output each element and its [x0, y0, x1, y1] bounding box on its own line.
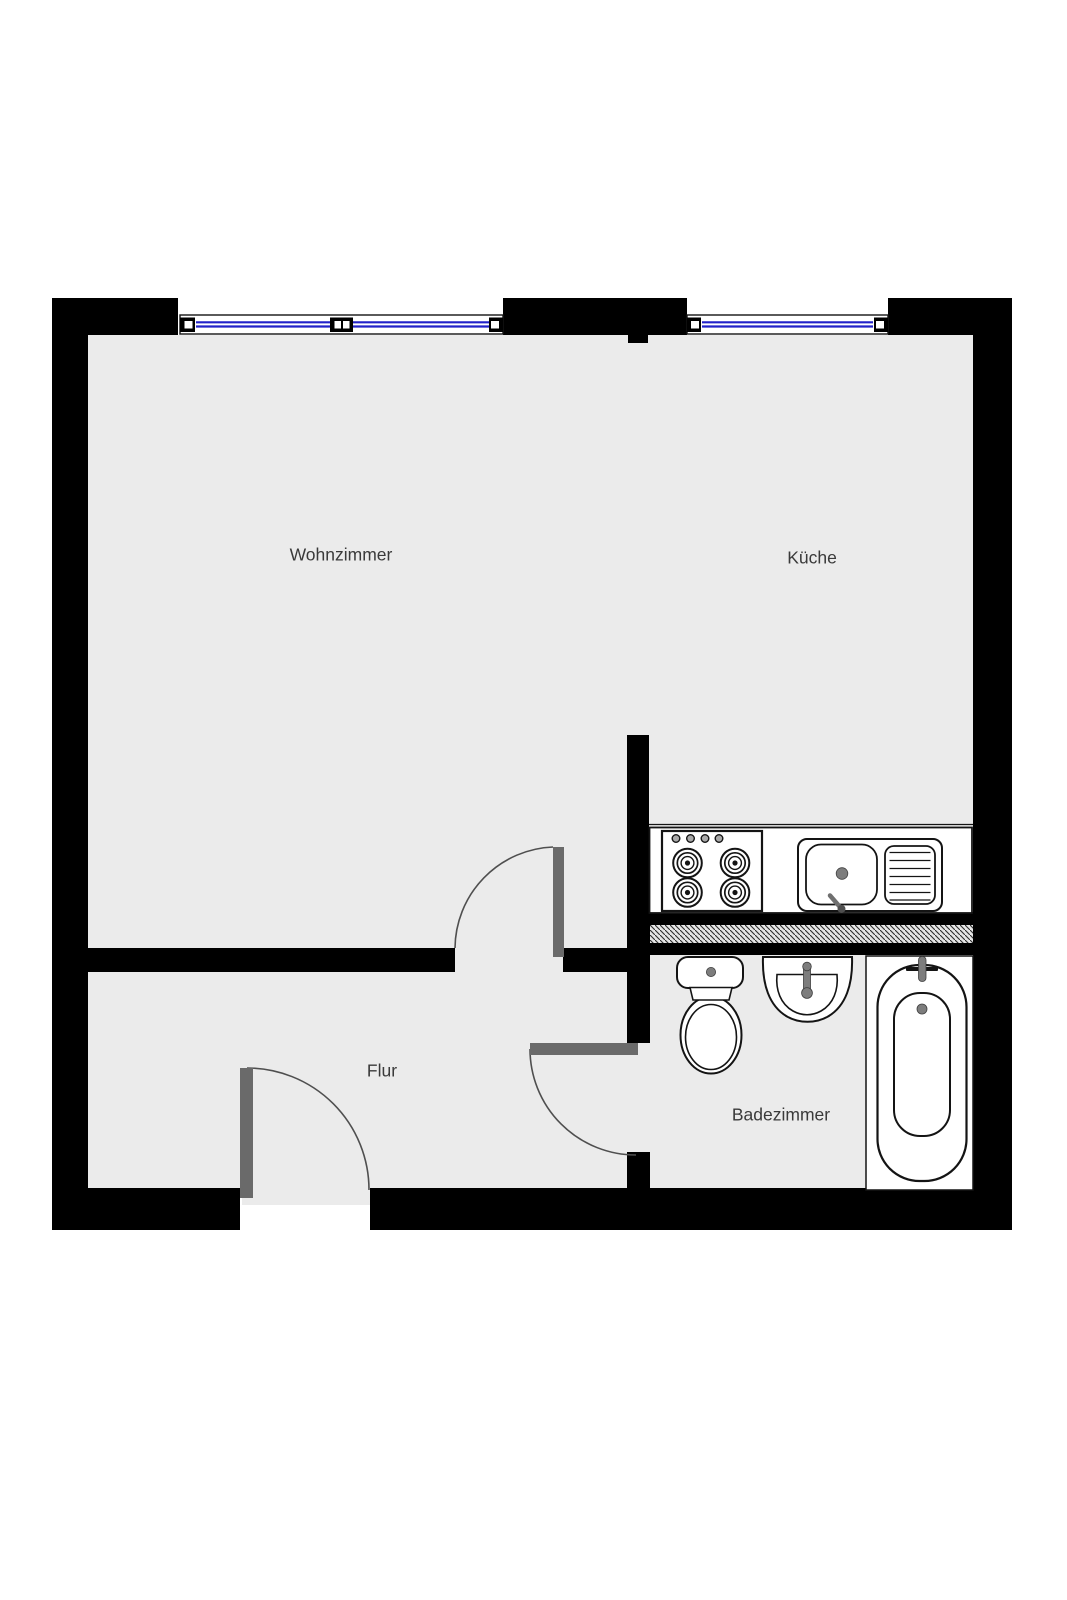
- window-wohnzimmer: [180, 315, 503, 334]
- stove-burner: [673, 849, 702, 878]
- sink-drain: [836, 868, 848, 880]
- room-label-flur: Flur: [367, 1061, 397, 1081]
- window-mullion-notch: [335, 321, 342, 329]
- window-end-cap-notch: [691, 321, 699, 329]
- stove-knob: [687, 835, 695, 843]
- window-frame: [687, 315, 888, 334]
- bathtub-drain: [917, 1004, 927, 1014]
- floor-plan-page: Wohnzimmer Küche Flur Badezimmer: [0, 0, 1067, 1600]
- sink-drainboard: [885, 846, 935, 904]
- floor-plan: Wohnzimmer Küche Flur Badezimmer: [0, 0, 1067, 1600]
- stove-burner: [673, 878, 702, 907]
- hatched-partition: [650, 925, 973, 943]
- wall-segment: [503, 298, 687, 335]
- stove-icon: [662, 831, 762, 911]
- door-leaf: [240, 1068, 253, 1198]
- room-label-badezimmer: Badezimmer: [732, 1105, 830, 1125]
- wall-segment: [973, 298, 1012, 1230]
- room-label-kueche: Küche: [787, 548, 837, 568]
- toilet-neck: [690, 988, 732, 1001]
- bathtub-icon: [866, 956, 973, 1190]
- kitchen-sink-icon: [798, 839, 942, 913]
- wall-segment: [627, 1152, 650, 1190]
- wall-segment: [52, 298, 88, 1230]
- wall-segment: [88, 948, 455, 972]
- toilet-flush-button: [706, 967, 715, 976]
- stove-burner: [721, 878, 750, 907]
- kitchen-counter: [649, 825, 973, 914]
- floor-areas: [88, 335, 973, 1205]
- sink-faucet-tip: [838, 905, 846, 913]
- window-mullion-notch: [343, 321, 350, 329]
- room-label-wohnzimmer: Wohnzimmer: [290, 545, 393, 565]
- door-leaf: [553, 847, 564, 957]
- window-kueche: [687, 315, 888, 334]
- toilet-icon: [677, 957, 743, 1074]
- bathtub-faucet: [919, 957, 927, 982]
- wall-segment: [370, 1188, 1012, 1230]
- wall-segment: [52, 1188, 240, 1230]
- bathtub-inner: [894, 993, 950, 1136]
- window-end-cap-notch: [185, 321, 193, 329]
- door-leaf: [530, 1043, 638, 1055]
- entrance-threshold: [242, 1188, 370, 1205]
- stove-knob: [715, 835, 723, 843]
- stove-knob: [672, 835, 680, 843]
- window-end-cap-notch: [876, 321, 884, 329]
- stove-knob: [701, 835, 709, 843]
- wall-segment: [628, 335, 648, 343]
- stove-burner: [721, 849, 750, 878]
- window-end-cap-notch: [491, 321, 499, 329]
- wall-segment: [627, 913, 650, 1043]
- wall-segment: [650, 943, 973, 955]
- washbasin-faucet-base: [802, 988, 813, 999]
- washbasin-faucet-top: [803, 962, 812, 971]
- window-mullion: [330, 318, 353, 333]
- toilet-bowl-outer: [681, 997, 742, 1074]
- wall-segment: [627, 912, 973, 925]
